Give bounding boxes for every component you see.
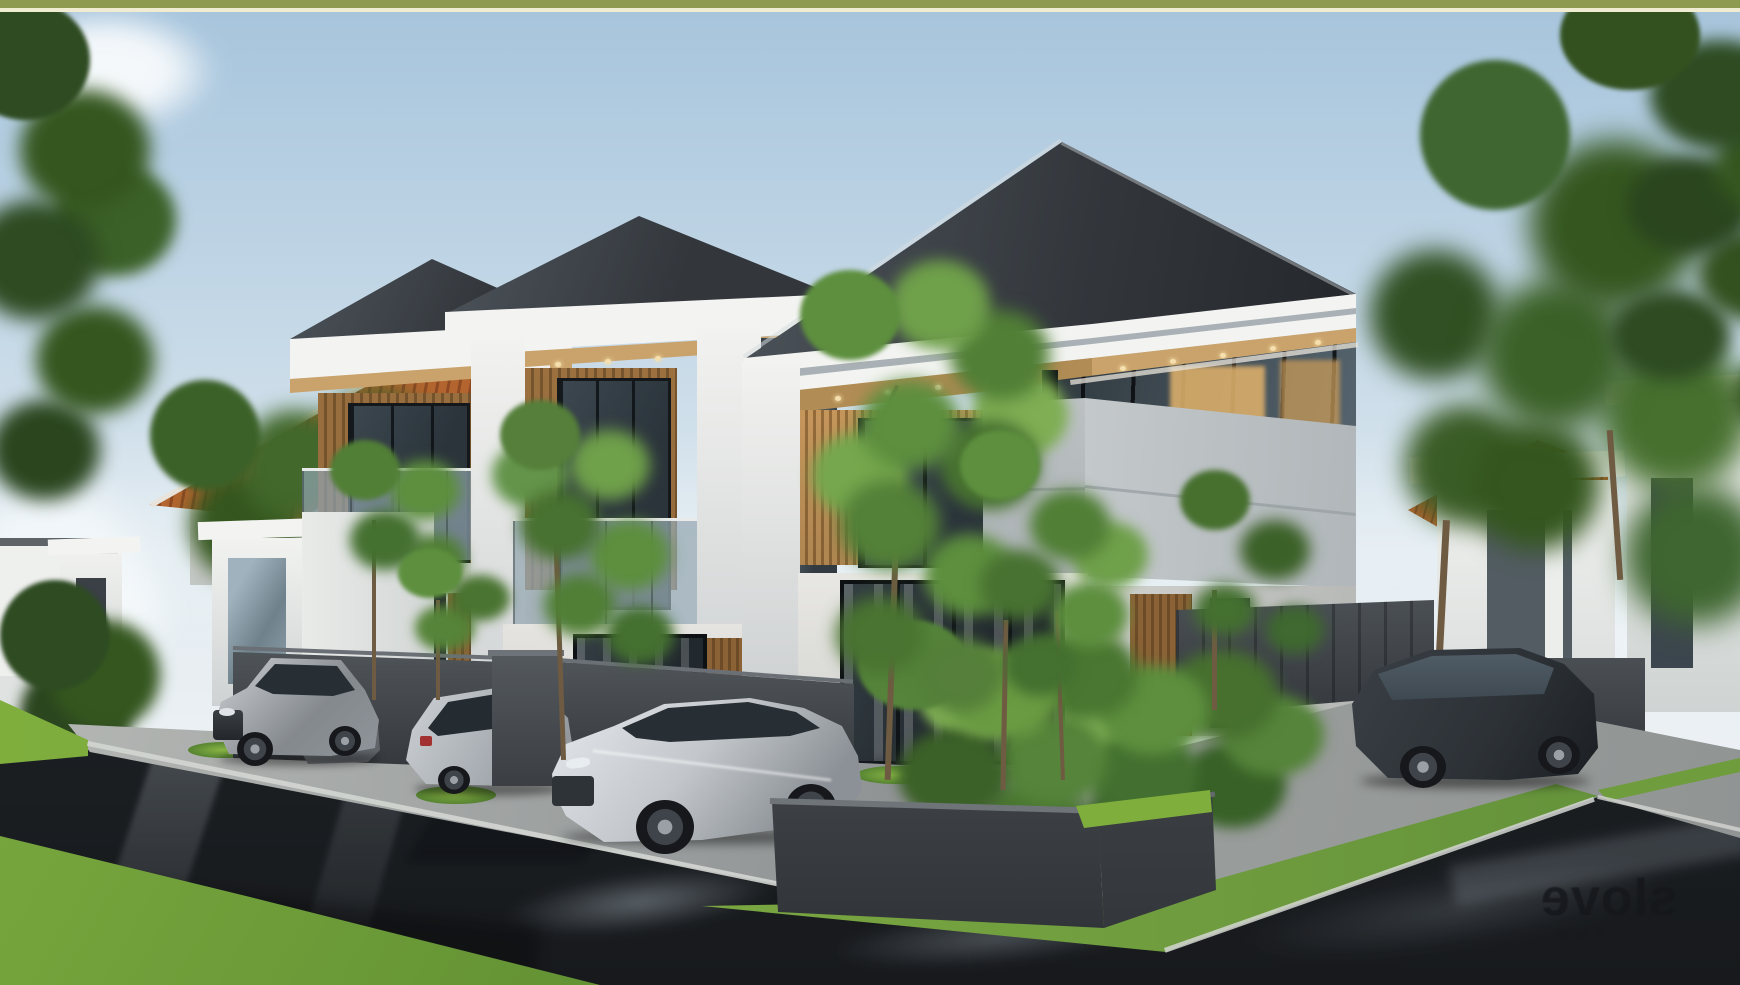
dark-suv bbox=[1348, 642, 1600, 792]
tree-trunk bbox=[436, 600, 440, 700]
car-wheel bbox=[1538, 736, 1580, 774]
car-wheel bbox=[636, 800, 694, 854]
front-tree-left-house bbox=[330, 440, 400, 500]
car-wheel bbox=[237, 732, 273, 766]
car-wheel bbox=[1400, 746, 1446, 788]
studio-watermark: slove w w w bbox=[1540, 872, 1740, 972]
car-wheel bbox=[329, 726, 361, 756]
car-headlight bbox=[219, 708, 235, 716]
right-yard-tree bbox=[1180, 470, 1250, 530]
planter-trees bbox=[960, 430, 1040, 500]
car-taillight bbox=[420, 736, 432, 746]
driveway-tree bbox=[398, 548, 462, 598]
car-wheel bbox=[438, 766, 470, 794]
watermark-url-text: w w w bbox=[1554, 928, 1604, 940]
frame-top-line bbox=[0, 8, 1740, 12]
silver-suv bbox=[213, 652, 381, 770]
fence-pillar-cap bbox=[488, 650, 564, 656]
frame-top-bar bbox=[0, 0, 1740, 8]
front-tree-corner-house bbox=[800, 270, 900, 360]
car-grille bbox=[552, 776, 594, 806]
front-tree-middle-house bbox=[500, 400, 580, 470]
tree-trunk bbox=[1212, 590, 1217, 710]
tree-trunk bbox=[372, 520, 376, 700]
watermark-logo-text: slove bbox=[1540, 872, 1678, 924]
render-canvas: slove w w w bbox=[0, 0, 1740, 985]
tropical-plants bbox=[858, 620, 968, 710]
